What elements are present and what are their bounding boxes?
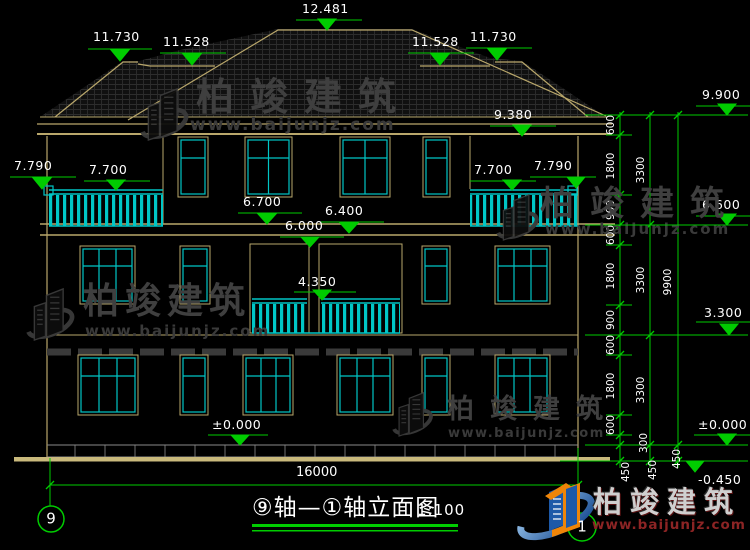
elevation-label-band-bottom: 6.000 [285, 220, 323, 233]
elevation-label-lower-ridge-right: 11.528 [412, 36, 459, 49]
elevation-label-ground-right: ±0.000 [698, 419, 747, 432]
elevation-label-eave-top: 9.900 [702, 89, 740, 102]
brand-logo-text: 柏竣建筑 [593, 488, 741, 517]
plinth [14, 445, 610, 462]
watermark-logos [24, 89, 540, 438]
dim-floor-3: 450 [648, 460, 659, 480]
elevation-label-main-ridge: 12.481 [302, 3, 349, 16]
dim-floor-0: 3300 [636, 157, 647, 184]
elevation-label-side-ridge-right: 11.730 [470, 31, 517, 44]
dim-total-0: 9900 [663, 269, 674, 296]
dim-inner-0: 600 [606, 115, 617, 135]
axis-bubble-1: 1 [577, 520, 587, 535]
watermark-url-bottom: www.baijunjz.com [448, 427, 605, 440]
elevation-label-balcony-post-right: 7.790 [534, 160, 572, 173]
drawing-title: ⑨轴—①轴立面图 [252, 497, 439, 520]
drawing-scale: 1:100 [417, 503, 465, 518]
brand-logo [515, 483, 597, 545]
watermark-brand-top: 柏竣建筑 [196, 78, 412, 116]
cad-elevation-canvas: 12.481 11.730 11.528 11.528 11.730 9.380… [0, 0, 750, 550]
dim-inner-10: 450 [621, 462, 632, 482]
dim-inner-5: 900 [606, 310, 617, 330]
elevation-label-balcony-rail-left: 7.700 [89, 164, 127, 177]
elevation-label-ground-center: ±0.000 [212, 419, 261, 432]
elevation-label-balcony-rail-2f: 4.350 [298, 276, 336, 289]
watermark-brand-left: 柏竣建筑 [83, 284, 251, 320]
elevation-label-sill-3f: 6.700 [243, 196, 281, 209]
watermark-url-right: www.baijunjz.com [545, 222, 730, 237]
dim-floor-1: 3300 [636, 267, 647, 294]
dim-total-1: 450 [672, 449, 683, 469]
axis-bubble-9: 9 [46, 512, 56, 527]
dim-inner-6: 600 [606, 335, 617, 355]
watermark-url-top: www.baijunjz.com [190, 117, 396, 134]
dim-floor-2: 3300 [636, 377, 647, 404]
ground-line [14, 457, 610, 462]
watermark-brand-bottom: 柏竣建筑 [447, 396, 619, 423]
elevation-label-band-top: 6.400 [325, 205, 363, 218]
watermark-brand-right: 柏竣建筑 [540, 187, 740, 221]
elevation-label-floor2: 3.300 [704, 307, 742, 320]
elevation-label-lower-ridge-left: 11.528 [163, 36, 210, 49]
dim-inner-9: 300 [639, 433, 650, 453]
dim-inner-4: 1800 [606, 263, 617, 290]
watermark-url-left: www.baijunjz.com [85, 324, 270, 339]
elevation-label-side-ridge-left: 11.730 [93, 31, 140, 44]
dim-overall-width: 16000 [296, 466, 337, 479]
dim-inner-1: 1800 [606, 153, 617, 180]
brand-logo-url: www.baijunjz.com [592, 519, 746, 533]
elevation-label-eave-soffit: 9.380 [494, 109, 532, 122]
elevation-label-balcony-post-left: 7.790 [14, 160, 52, 173]
elevation-label-balcony-rail-right: 7.700 [474, 164, 512, 177]
